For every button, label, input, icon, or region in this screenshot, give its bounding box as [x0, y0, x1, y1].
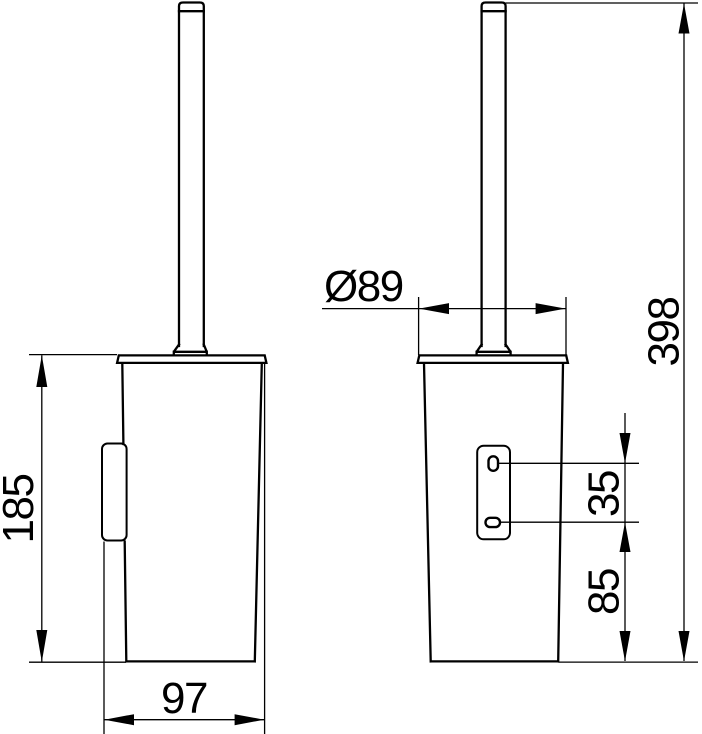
svg-text:35: 35 — [580, 471, 629, 517]
svg-text:85: 85 — [580, 569, 629, 615]
svg-text:398: 398 — [640, 298, 689, 367]
svg-text:185: 185 — [0, 475, 43, 544]
svg-text:Ø89: Ø89 — [324, 262, 403, 311]
svg-text:97: 97 — [161, 674, 207, 723]
